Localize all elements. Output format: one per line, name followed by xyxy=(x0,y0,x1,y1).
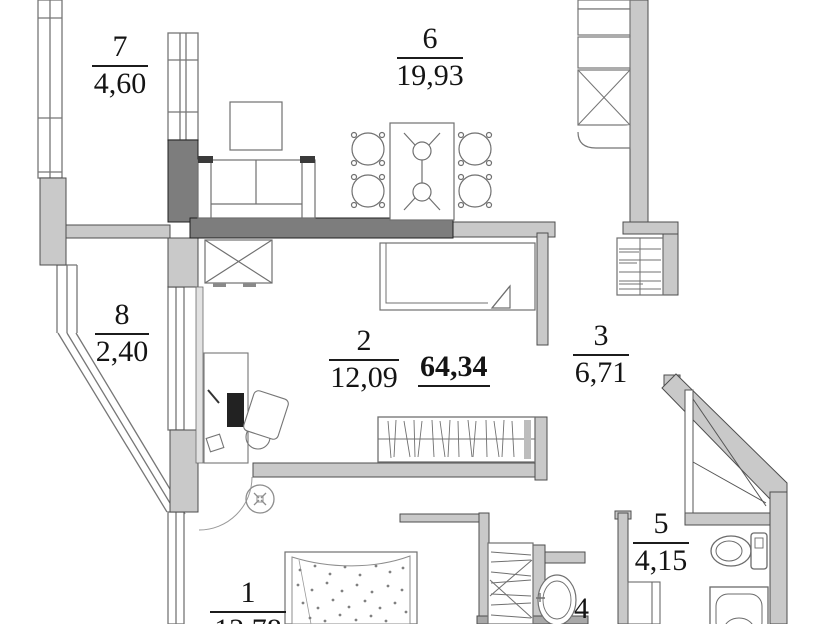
wardrobe-x xyxy=(205,240,272,287)
room-number: 5 xyxy=(606,509,716,540)
room-number: 7 xyxy=(65,32,175,63)
dresser xyxy=(617,238,663,295)
cabinet-column xyxy=(578,0,630,148)
desk xyxy=(204,353,290,463)
total-area-label: 64,34 xyxy=(418,350,490,387)
sofa xyxy=(198,156,315,218)
bathtub xyxy=(710,587,768,624)
single-bed xyxy=(380,243,535,310)
room-area: 2,40 xyxy=(67,337,177,368)
room-number: 3 xyxy=(546,321,656,352)
balcony7-left-window xyxy=(38,0,62,178)
room-area: 6,71 xyxy=(546,358,656,389)
room-label-5: 5 4,15 xyxy=(606,509,716,576)
room-area: 4,15 xyxy=(606,546,716,577)
room-label-1: 1 12,78 xyxy=(193,578,303,624)
room-area: 12,78 xyxy=(193,615,303,624)
room-area: 19,93 xyxy=(375,61,485,92)
room-number: 2 xyxy=(309,326,419,357)
hanging-wardrobe xyxy=(488,543,533,624)
room-label-3: 3 6,71 xyxy=(546,321,656,388)
washer-partition xyxy=(628,582,660,624)
dining-table xyxy=(390,123,454,220)
room-label-7: 7 4,60 xyxy=(65,32,175,99)
bookshelf xyxy=(378,417,535,462)
room-number: 6 xyxy=(375,24,485,55)
room1-left-window xyxy=(168,512,184,624)
tv-table xyxy=(230,102,282,150)
room-number: 8 xyxy=(67,300,177,331)
room-label-2: 2 12,09 xyxy=(309,326,419,393)
room-label-4: 4 xyxy=(574,592,589,624)
toilet xyxy=(711,533,767,569)
room-number: 4 xyxy=(574,592,589,624)
room-number: 1 xyxy=(193,578,303,609)
room-area: 4,60 xyxy=(65,69,175,100)
room2-left-wall xyxy=(196,287,203,463)
double-bed xyxy=(285,552,417,624)
desk-chair xyxy=(242,389,289,440)
room-area: 12,09 xyxy=(309,363,419,394)
door-arc xyxy=(199,477,252,530)
room-label-6: 6 19,93 xyxy=(375,24,485,91)
floor-plan: 7 4,60 6 19,93 8 2,40 2 12,09 3 6,71 5 4… xyxy=(0,0,824,624)
room-label-8: 8 2,40 xyxy=(67,300,177,367)
ceiling-light-symbol xyxy=(246,485,274,513)
